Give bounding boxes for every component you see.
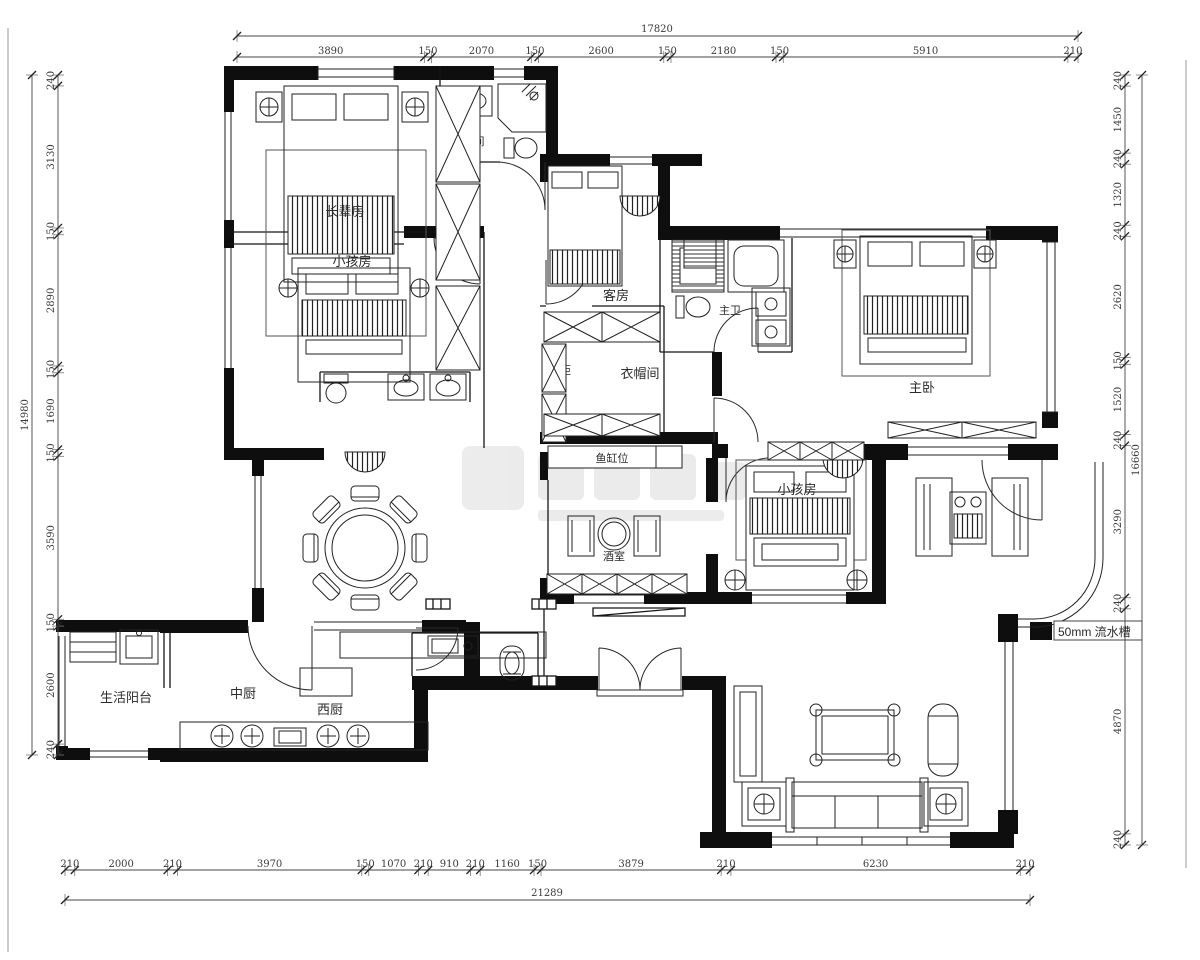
svg-text:16660: 16660 bbox=[1131, 444, 1142, 476]
mop-basin bbox=[500, 646, 524, 680]
svg-text:150: 150 bbox=[418, 46, 437, 57]
svg-text:210: 210 bbox=[466, 859, 485, 870]
svg-text:210: 210 bbox=[1016, 859, 1035, 870]
label-master-bedroom: 主卧 bbox=[909, 380, 935, 395]
fan-coil-dining bbox=[345, 452, 385, 472]
bed-kids-upper bbox=[279, 268, 429, 382]
svg-text:150: 150 bbox=[46, 360, 57, 379]
svg-text:240: 240 bbox=[1113, 830, 1124, 849]
svg-text:150: 150 bbox=[770, 46, 789, 57]
study-furniture bbox=[916, 478, 1028, 556]
master-bath-fixtures bbox=[672, 240, 790, 346]
svg-text:240: 240 bbox=[1113, 149, 1124, 168]
dining-table bbox=[325, 508, 405, 588]
svg-text:210: 210 bbox=[414, 859, 433, 870]
svg-text:150: 150 bbox=[46, 443, 57, 462]
svg-text:210: 210 bbox=[60, 859, 79, 870]
label-kids-room-lower: 小孩房 bbox=[777, 482, 816, 497]
label-fish-tank: 鱼缸位 bbox=[596, 451, 629, 465]
label-guest-room: 客房 bbox=[603, 288, 629, 303]
bed-guest-room bbox=[548, 166, 622, 286]
svg-text:2180: 2180 bbox=[711, 46, 736, 57]
svg-text:2890: 2890 bbox=[46, 288, 57, 313]
svg-text:240: 240 bbox=[1113, 594, 1124, 613]
svg-text:240: 240 bbox=[1113, 221, 1124, 240]
svg-text:150: 150 bbox=[525, 46, 544, 57]
svg-text:1070: 1070 bbox=[381, 859, 406, 870]
floorplan-canvas: 长辈房 小孩房 卫生间 客房 衣柜 鞋柜 衣帽间 衣柜 主卫 主卧 鱼缸位 酒室… bbox=[0, 0, 1200, 960]
svg-text:3970: 3970 bbox=[257, 859, 282, 870]
label-elder-room: 长辈房 bbox=[325, 204, 364, 219]
svg-text:5910: 5910 bbox=[913, 46, 938, 57]
svg-text:3130: 3130 bbox=[46, 144, 57, 169]
svg-text:240: 240 bbox=[1113, 71, 1124, 90]
label-western-kitchen: 西厨 bbox=[317, 702, 343, 717]
label-wine-room: 酒室 bbox=[603, 549, 625, 563]
svg-text:2070: 2070 bbox=[469, 46, 494, 57]
svg-text:21289: 21289 bbox=[531, 888, 563, 899]
svg-text:3590: 3590 bbox=[46, 525, 57, 550]
svg-text:210: 210 bbox=[716, 859, 735, 870]
label-master-bathroom: 主卫 bbox=[719, 304, 741, 317]
svg-text:240: 240 bbox=[46, 740, 57, 759]
svg-text:3879: 3879 bbox=[618, 859, 643, 870]
svg-text:3290: 3290 bbox=[1113, 509, 1124, 534]
svg-text:14980: 14980 bbox=[20, 399, 31, 431]
svg-text:150: 150 bbox=[658, 46, 677, 57]
label-drain-note: 50mm 流水槽 bbox=[1058, 625, 1131, 639]
svg-text:240: 240 bbox=[1113, 431, 1124, 450]
svg-text:4870: 4870 bbox=[1113, 709, 1124, 734]
svg-text:910: 910 bbox=[440, 859, 459, 870]
svg-text:1160: 1160 bbox=[494, 859, 519, 870]
floorplan-sheet: 长辈房 小孩房 卫生间 客房 衣柜 鞋柜 衣帽间 衣柜 主卫 主卧 鱼缸位 酒室… bbox=[0, 0, 1200, 960]
label-kids-room-upper: 小孩房 bbox=[332, 254, 371, 269]
balcony-fixtures bbox=[70, 630, 158, 664]
svg-text:1450: 1450 bbox=[1113, 107, 1124, 132]
svg-text:2620: 2620 bbox=[1113, 284, 1124, 309]
label-utility-balcony: 生活阳台 bbox=[100, 690, 152, 705]
svg-text:1520: 1520 bbox=[1113, 387, 1124, 412]
svg-text:150: 150 bbox=[46, 222, 57, 241]
label-cloakroom: 衣帽间 bbox=[620, 366, 659, 381]
fan-coil-guest bbox=[620, 196, 660, 216]
svg-text:1690: 1690 bbox=[46, 398, 57, 423]
living-room-set bbox=[734, 686, 968, 832]
svg-text:2000: 2000 bbox=[108, 859, 133, 870]
bed-kids-lower bbox=[725, 460, 867, 590]
svg-text:150: 150 bbox=[356, 859, 375, 870]
wine-room-set bbox=[568, 516, 660, 556]
svg-text:2600: 2600 bbox=[588, 46, 613, 57]
svg-text:150: 150 bbox=[46, 613, 57, 632]
svg-text:210: 210 bbox=[163, 859, 182, 870]
bathroom-fixtures-shared bbox=[324, 374, 466, 403]
bed-master bbox=[834, 230, 996, 376]
svg-text:150: 150 bbox=[1113, 351, 1124, 370]
svg-text:2600: 2600 bbox=[46, 672, 57, 697]
svg-text:150: 150 bbox=[528, 859, 547, 870]
svg-text:6230: 6230 bbox=[863, 859, 888, 870]
svg-text:17820: 17820 bbox=[641, 24, 673, 35]
svg-text:1320: 1320 bbox=[1113, 182, 1124, 207]
label-chinese-kitchen: 中厨 bbox=[230, 686, 256, 701]
svg-text:3890: 3890 bbox=[318, 46, 343, 57]
svg-text:210: 210 bbox=[1063, 46, 1082, 57]
svg-text:240: 240 bbox=[46, 71, 57, 90]
